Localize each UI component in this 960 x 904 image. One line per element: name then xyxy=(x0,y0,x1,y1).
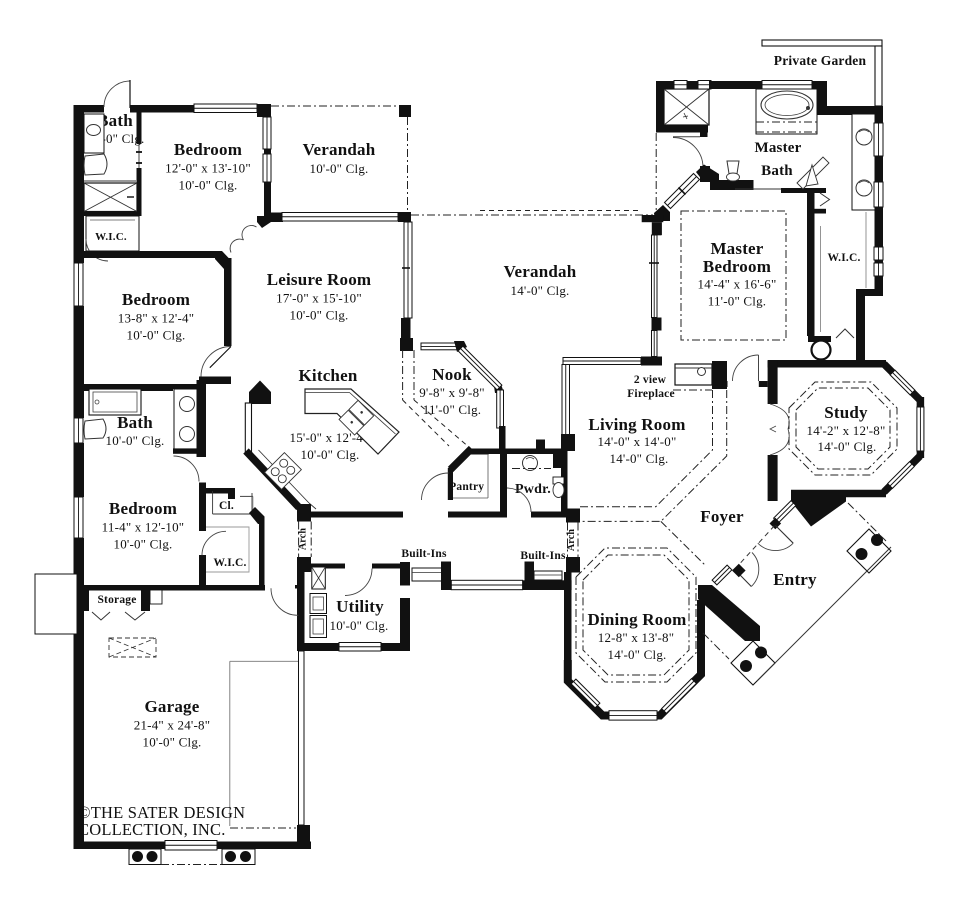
svg-text:12'-0" x 13'-10": 12'-0" x 13'-10" xyxy=(165,161,251,176)
svg-text:11-4" x 12'-10": 11-4" x 12'-10" xyxy=(102,520,185,535)
svg-text:Pantry: Pantry xyxy=(449,481,484,493)
svg-text:W.I.C.: W.I.C. xyxy=(827,252,860,264)
svg-text:Leisure Room: Leisure Room xyxy=(267,270,372,289)
svg-text:Pwdr.: Pwdr. xyxy=(515,482,551,497)
svg-text:Entry: Entry xyxy=(773,570,817,589)
svg-text:Living Room: Living Room xyxy=(588,415,685,434)
svg-text:10'-0" Clg.: 10'-0" Clg. xyxy=(143,735,202,750)
svg-text:Storage: Storage xyxy=(97,594,136,606)
svg-text:13-8" x 12'-4": 13-8" x 12'-4" xyxy=(118,311,194,326)
svg-text:Master: Master xyxy=(754,140,801,156)
svg-text:Nook: Nook xyxy=(432,365,472,384)
svg-text:W.I.C.: W.I.C. xyxy=(213,557,246,569)
svg-text:Arch: Arch xyxy=(566,529,577,552)
svg-text:2 view: 2 view xyxy=(634,374,667,386)
svg-text:Bedroom: Bedroom xyxy=(703,257,771,276)
svg-text:Private Garden: Private Garden xyxy=(774,53,867,68)
svg-text:Bedroom: Bedroom xyxy=(122,290,190,309)
svg-text:10'-0" Clg.: 10'-0" Clg. xyxy=(114,537,173,552)
svg-text:10'-0" Clg.: 10'-0" Clg. xyxy=(290,308,349,323)
svg-text:Master: Master xyxy=(710,239,763,258)
svg-text:14'-0" Clg.: 14'-0" Clg. xyxy=(608,647,667,662)
svg-text:COLLECTION, INC.: COLLECTION, INC. xyxy=(78,820,226,839)
svg-text:Foyer: Foyer xyxy=(700,507,744,526)
svg-text:10'-0" Clg.: 10'-0" Clg. xyxy=(310,161,369,176)
svg-text:Bedroom: Bedroom xyxy=(174,140,242,159)
svg-text:10'-0" Clg.: 10'-0" Clg. xyxy=(301,447,360,462)
svg-text:Bath: Bath xyxy=(117,413,153,432)
svg-text:Built-Ins: Built-Ins xyxy=(401,548,447,560)
svg-text:12-8" x 13'-8": 12-8" x 13'-8" xyxy=(598,630,674,645)
svg-text:Verandah: Verandah xyxy=(303,140,376,159)
svg-text:Bedroom: Bedroom xyxy=(109,499,177,518)
svg-text:Cl.: Cl. xyxy=(219,500,234,512)
svg-text:Study: Study xyxy=(824,403,868,422)
svg-text:10'-0" Clg.: 10'-0" Clg. xyxy=(179,178,238,193)
svg-text:14'-0" Clg.: 14'-0" Clg. xyxy=(511,283,570,298)
svg-text:11'-0" Clg.: 11'-0" Clg. xyxy=(708,294,766,309)
svg-text:Dining Room: Dining Room xyxy=(587,610,686,629)
svg-text:14'-2" x 12'-8": 14'-2" x 12'-8" xyxy=(807,423,886,438)
svg-text:10'-0" Clg.: 10'-0" Clg. xyxy=(127,328,186,343)
svg-text:Garage: Garage xyxy=(144,697,199,716)
svg-text:21-4" x 24'-8": 21-4" x 24'-8" xyxy=(134,718,210,733)
svg-text:W.I.C.: W.I.C. xyxy=(95,231,127,243)
svg-text:14'-4" x 16'-6": 14'-4" x 16'-6" xyxy=(698,277,777,292)
svg-text:14'-0" Clg.: 14'-0" Clg. xyxy=(610,451,669,466)
svg-text:Built-Ins: Built-Ins xyxy=(520,550,566,562)
svg-text:14'-0" x 14'-0": 14'-0" x 14'-0" xyxy=(598,434,677,449)
svg-text:9'-8" x 9'-8": 9'-8" x 9'-8" xyxy=(419,385,485,400)
svg-text:10'-0" Clg.: 10'-0" Clg. xyxy=(330,618,389,633)
svg-text:Bath: Bath xyxy=(761,163,793,179)
svg-text:17'-0" x 15'-10": 17'-0" x 15'-10" xyxy=(276,291,362,306)
svg-text:Arch: Arch xyxy=(298,528,309,551)
svg-text:Fireplace: Fireplace xyxy=(627,388,675,400)
svg-text:14'-0" Clg.: 14'-0" Clg. xyxy=(818,439,877,454)
svg-text:Utility: Utility xyxy=(336,597,384,616)
svg-text:10'-0" Clg.: 10'-0" Clg. xyxy=(106,433,165,448)
svg-text:Verandah: Verandah xyxy=(504,262,577,281)
svg-text:Kitchen: Kitchen xyxy=(298,366,357,385)
